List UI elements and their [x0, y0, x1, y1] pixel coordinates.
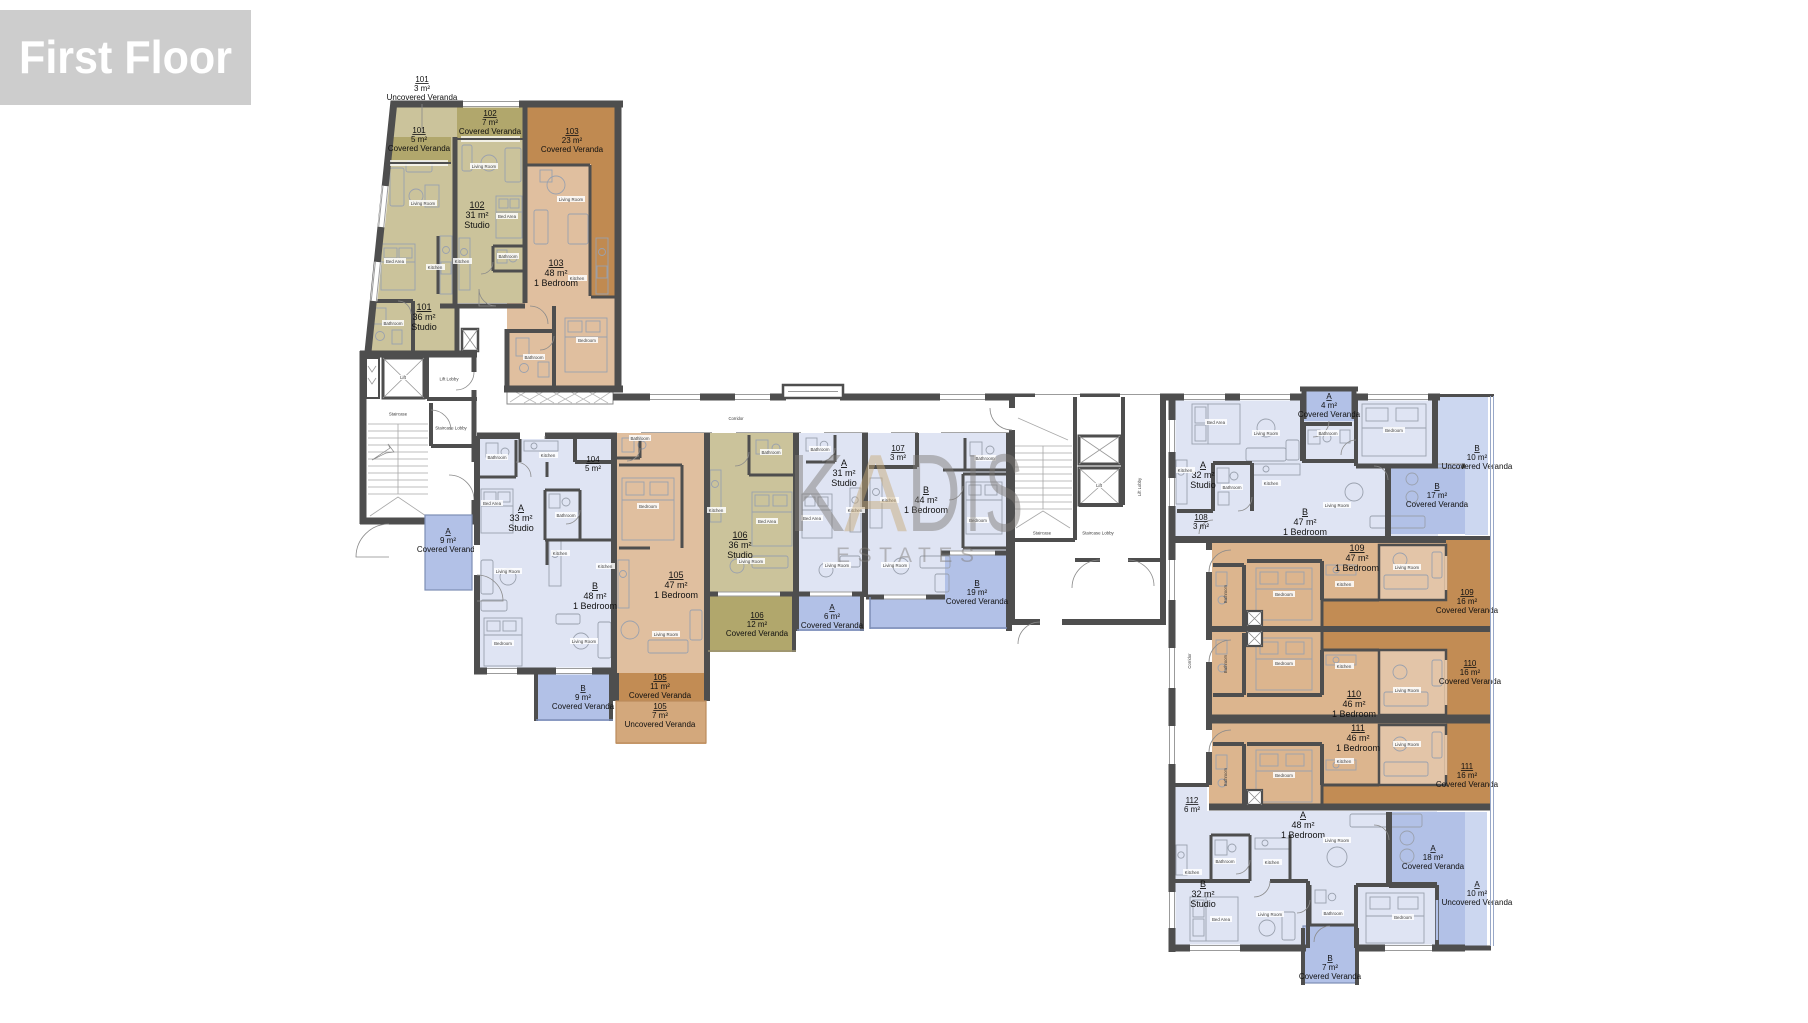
svg-text:A: A [1326, 392, 1332, 401]
svg-text:Corridor: Corridor [1187, 653, 1192, 669]
svg-text:Lift Lobby: Lift Lobby [439, 377, 459, 382]
svg-text:Kitchen: Kitchen [598, 564, 613, 569]
svg-text:Studio: Studio [411, 322, 437, 332]
svg-text:Bathroom: Bathroom [1323, 911, 1342, 916]
svg-text:Living Room: Living Room [1325, 503, 1350, 508]
svg-text:Staircase: Staircase [1033, 531, 1052, 536]
svg-text:A: A [1200, 460, 1206, 470]
svg-text:B: B [1200, 879, 1206, 889]
svg-text:Kitchen: Kitchen [1178, 468, 1193, 473]
svg-text:Kitchen: Kitchen [1265, 860, 1280, 865]
svg-text:Kitchen: Kitchen [1337, 664, 1352, 669]
svg-text:B: B [592, 581, 598, 591]
svg-text:B: B [1302, 507, 1308, 517]
svg-text:Covered Veranda: Covered Veranda [629, 691, 692, 700]
svg-text:1 Bedroom: 1 Bedroom [1281, 830, 1325, 840]
svg-text:Covered Veranda: Covered Veranda [388, 144, 451, 153]
svg-text:106: 106 [732, 530, 747, 540]
svg-text:1 Bedroom: 1 Bedroom [1335, 563, 1379, 573]
svg-text:Living Room: Living Room [1258, 912, 1283, 917]
svg-text:Living Room: Living Room [1325, 838, 1350, 843]
svg-text:Uncovered Veranda: Uncovered Veranda [1442, 462, 1513, 471]
svg-text:103: 103 [565, 127, 579, 136]
svg-text:Bathroom: Bathroom [524, 355, 543, 360]
svg-text:Covered Veranda: Covered Veranda [1436, 606, 1499, 615]
svg-text:Bedroom: Bedroom [578, 338, 596, 343]
svg-text:5 m²: 5 m² [585, 464, 601, 473]
svg-text:108: 108 [1194, 513, 1208, 522]
svg-text:D: D [907, 432, 961, 555]
svg-text:Covered Veranda: Covered Veranda [1298, 410, 1361, 419]
svg-text:Staircase: Staircase [389, 412, 408, 417]
svg-text:Bedroom: Bedroom [494, 641, 512, 646]
svg-text:Uncovered Veranda: Uncovered Veranda [625, 720, 696, 729]
svg-text:Bed Area: Bed Area [1207, 420, 1226, 425]
svg-text:7 m²: 7 m² [482, 118, 498, 127]
svg-text:Living Room: Living Room [1395, 565, 1420, 570]
svg-text:3 m²: 3 m² [414, 84, 430, 93]
svg-text:Living Room: Living Room [654, 632, 679, 637]
svg-text:9 m²: 9 m² [575, 693, 591, 702]
svg-text:Bathroom: Bathroom [556, 513, 575, 518]
svg-text:101: 101 [412, 126, 426, 135]
svg-text:Bathroom: Bathroom [1223, 767, 1228, 786]
svg-text:48 m²: 48 m² [583, 591, 606, 601]
svg-text:B: B [974, 579, 979, 588]
svg-text:B: B [1327, 954, 1332, 963]
svg-text:106: 106 [750, 611, 764, 620]
svg-text:Kitchen: Kitchen [553, 551, 568, 556]
svg-text:Covered Veranda: Covered Veranda [801, 621, 864, 630]
svg-text:Bathroom: Bathroom [487, 455, 506, 460]
svg-text:7 m²: 7 m² [652, 711, 668, 720]
svg-text:Bed Area: Bed Area [386, 259, 405, 264]
svg-text:Kitchen: Kitchen [1185, 870, 1200, 875]
svg-text:First Floor: First Floor [19, 31, 232, 83]
svg-text:K: K [788, 432, 845, 555]
svg-text:B: B [580, 684, 585, 693]
svg-text:Covered Veranda: Covered Veranda [417, 545, 480, 554]
svg-text:12 m²: 12 m² [747, 620, 768, 629]
svg-text:17 m²: 17 m² [1427, 491, 1448, 500]
svg-text:Covered Veranda: Covered Veranda [1299, 972, 1362, 981]
svg-text:A: A [844, 432, 908, 555]
svg-text:Living Room: Living Room [472, 164, 497, 169]
svg-text:7 m²: 7 m² [1322, 963, 1338, 972]
svg-text:Bathroom: Bathroom [1222, 485, 1241, 490]
svg-text:S: S [985, 432, 1023, 555]
svg-text:36 m²: 36 m² [728, 540, 751, 550]
svg-text:16 m²: 16 m² [1457, 771, 1478, 780]
svg-text:Bedroom: Bedroom [1385, 428, 1403, 433]
svg-text:47 m²: 47 m² [664, 580, 687, 590]
svg-text:A: A [1300, 810, 1306, 820]
svg-text:109: 109 [1460, 588, 1474, 597]
svg-text:Lift: Lift [400, 375, 407, 380]
svg-text:19 m²: 19 m² [967, 588, 988, 597]
svg-text:Covered Veranda: Covered Veranda [726, 629, 789, 638]
svg-text:10 m²: 10 m² [1467, 889, 1488, 898]
svg-text:101: 101 [415, 75, 429, 84]
svg-text:Bed Area: Bed Area [483, 501, 502, 506]
svg-text:Kitchen: Kitchen [1337, 582, 1352, 587]
svg-text:46 m²: 46 m² [1342, 699, 1365, 709]
svg-text:Living Room: Living Room [1395, 688, 1420, 693]
svg-text:Lift Lobby: Lift Lobby [1137, 477, 1142, 496]
svg-text:A: A [445, 527, 451, 536]
svg-text:6 m²: 6 m² [1184, 805, 1200, 814]
svg-text:103: 103 [548, 258, 563, 268]
svg-text:6 m²: 6 m² [824, 612, 840, 621]
svg-text:105: 105 [653, 673, 667, 682]
svg-text:1 Bedroom: 1 Bedroom [1332, 709, 1376, 719]
svg-text:1 Bedroom: 1 Bedroom [1283, 527, 1327, 537]
svg-text:110: 110 [1347, 689, 1361, 699]
svg-text:10 m²: 10 m² [1467, 453, 1488, 462]
svg-text:Bathroom: Bathroom [761, 450, 780, 455]
svg-text:Lift: Lift [1096, 483, 1103, 488]
svg-text:1 Bedroom: 1 Bedroom [654, 590, 698, 600]
svg-text:32 m²: 32 m² [1191, 889, 1214, 899]
svg-text:Bedroom: Bedroom [1394, 915, 1412, 920]
svg-text:Covered Veranda: Covered Veranda [1402, 862, 1465, 871]
svg-text:105: 105 [653, 702, 667, 711]
svg-text:4 m²: 4 m² [1321, 401, 1337, 410]
svg-text:Bedroom: Bedroom [1275, 592, 1293, 597]
svg-text:Studio: Studio [1190, 480, 1216, 490]
svg-text:110: 110 [1464, 659, 1477, 668]
svg-text:16 m²: 16 m² [1460, 668, 1481, 677]
svg-text:Living Room: Living Room [1395, 742, 1420, 747]
svg-text:Living Room: Living Room [1254, 431, 1279, 436]
svg-text:Staircase Lobby: Staircase Lobby [1082, 531, 1114, 536]
svg-text:Covered Veranda: Covered Veranda [1436, 780, 1499, 789]
svg-text:3 m²: 3 m² [1193, 522, 1209, 531]
svg-text:46 m²: 46 m² [1346, 733, 1369, 743]
svg-text:1 Bedroom: 1 Bedroom [573, 601, 617, 611]
svg-text:Kitchen: Kitchen [709, 508, 724, 513]
svg-text:Studio: Studio [464, 220, 490, 230]
svg-text:Corridor: Corridor [728, 416, 744, 421]
svg-text:48 m²: 48 m² [1291, 820, 1314, 830]
svg-text:47 m²: 47 m² [1345, 553, 1368, 563]
svg-text:B: B [1474, 444, 1479, 453]
svg-text:5 m²: 5 m² [411, 135, 427, 144]
svg-text:11 m²: 11 m² [650, 682, 670, 691]
svg-text:Bathroom: Bathroom [1223, 654, 1228, 673]
svg-text:B: B [1434, 482, 1439, 491]
svg-text:Uncovered Veranda: Uncovered Veranda [1442, 898, 1513, 907]
svg-text:9 m²: 9 m² [440, 536, 456, 545]
svg-text:48 m²: 48 m² [544, 268, 567, 278]
svg-text:104: 104 [586, 455, 600, 464]
svg-text:Bathroom: Bathroom [1215, 859, 1234, 864]
svg-text:Living Room: Living Room [739, 559, 764, 564]
svg-text:Kitchen: Kitchen [428, 265, 443, 270]
svg-text:1 Bedroom: 1 Bedroom [1336, 743, 1380, 753]
svg-text:102: 102 [469, 200, 484, 210]
svg-text:Bedroom: Bedroom [1275, 661, 1293, 666]
svg-text:Bathroom: Bathroom [1318, 431, 1337, 436]
svg-text:Bed Area: Bed Area [498, 214, 517, 219]
svg-text:101: 101 [416, 302, 431, 312]
svg-text:105: 105 [668, 570, 683, 580]
svg-text:31 m²: 31 m² [465, 210, 488, 220]
svg-text:Kitchen: Kitchen [1337, 759, 1352, 764]
svg-text:Kitchen: Kitchen [1264, 481, 1279, 486]
svg-text:Kitchen: Kitchen [570, 276, 585, 281]
svg-text:Bathroom: Bathroom [383, 321, 402, 326]
svg-text:I: I [965, 432, 981, 555]
svg-text:33 m²: 33 m² [509, 513, 532, 523]
svg-text:109: 109 [1349, 543, 1364, 553]
svg-text:Bed Area: Bed Area [758, 519, 777, 524]
svg-text:Covered Veranda: Covered Veranda [552, 702, 615, 711]
svg-text:Kitchen: Kitchen [541, 453, 556, 458]
svg-text:Studio: Studio [508, 523, 534, 533]
svg-text:102: 102 [483, 109, 497, 118]
svg-text:A: A [518, 503, 524, 513]
svg-text:Bed Area: Bed Area [1212, 917, 1231, 922]
svg-text:A: A [1430, 844, 1436, 853]
svg-text:Studio: Studio [1190, 899, 1216, 909]
svg-text:Living Room: Living Room [559, 197, 584, 202]
svg-text:Living Room: Living Room [496, 569, 521, 574]
svg-text:Bedroom: Bedroom [639, 504, 657, 509]
svg-text:Covered Veranda: Covered Veranda [541, 145, 604, 154]
svg-text:16 m²: 16 m² [1457, 597, 1478, 606]
svg-text:Uncovered Veranda: Uncovered Veranda [387, 93, 458, 102]
svg-text:Living Room: Living Room [411, 201, 436, 206]
svg-text:Covered Veranda: Covered Veranda [946, 597, 1009, 606]
svg-text:Bathroom: Bathroom [1223, 584, 1228, 603]
svg-text:112: 112 [1186, 796, 1199, 805]
svg-text:111: 111 [1351, 723, 1365, 733]
svg-text:111: 111 [1461, 762, 1474, 771]
svg-text:Bathroom: Bathroom [630, 436, 649, 441]
svg-text:Bathroom: Bathroom [498, 254, 517, 259]
svg-text:36 m²: 36 m² [412, 312, 435, 322]
svg-text:18 m²: 18 m² [1423, 853, 1444, 862]
svg-text:Covered Veranda: Covered Veranda [459, 127, 522, 136]
svg-text:Living Room: Living Room [572, 639, 597, 644]
svg-text:Bedroom: Bedroom [1275, 773, 1293, 778]
svg-text:Kitchen: Kitchen [455, 259, 470, 264]
svg-text:23 m²: 23 m² [562, 136, 583, 145]
svg-text:Covered Veranda: Covered Veranda [1439, 677, 1502, 686]
svg-text:A: A [829, 603, 835, 612]
svg-text:47 m²: 47 m² [1293, 517, 1316, 527]
svg-text:A: A [1474, 880, 1480, 889]
svg-text:Covered Veranda: Covered Veranda [1406, 500, 1469, 509]
